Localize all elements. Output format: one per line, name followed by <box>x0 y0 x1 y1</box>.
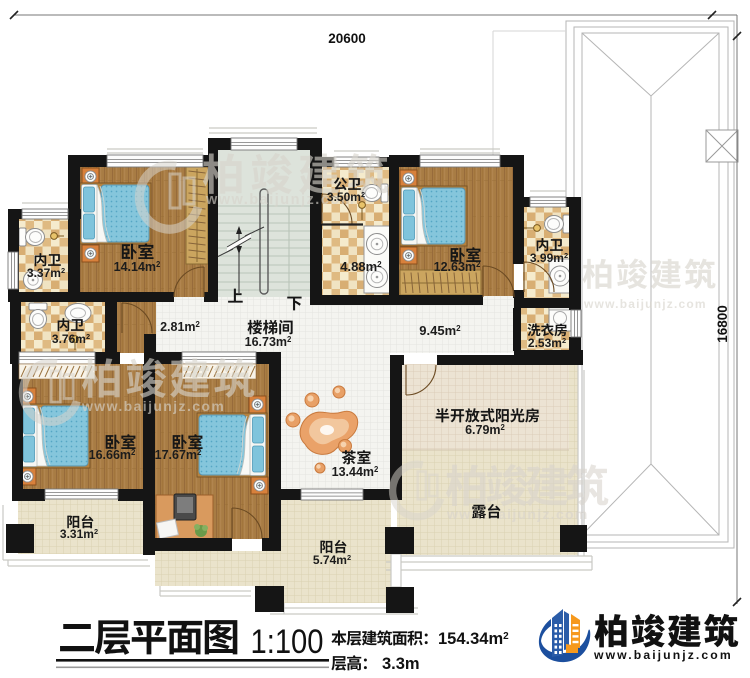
svg-text:12.63m2: 12.63m2 <box>434 260 481 274</box>
svg-text:3.3m: 3.3m <box>382 655 420 673</box>
svg-text:1:100: 1:100 <box>251 623 324 661</box>
svg-text:16800: 16800 <box>715 305 730 343</box>
svg-text:9.45m2: 9.45m2 <box>419 323 461 338</box>
svg-text:16.73m2: 16.73m2 <box>245 335 292 349</box>
svg-text:2.81m2: 2.81m2 <box>160 320 200 334</box>
svg-text:5.74m2: 5.74m2 <box>313 553 351 567</box>
svg-text:www.baijunjz.com: www.baijunjz.com <box>446 506 589 522</box>
svg-text:17.67m2: 17.67m2 <box>155 448 202 462</box>
svg-text:14.14m2: 14.14m2 <box>114 260 161 274</box>
svg-text:www.baijunjz.com: www.baijunjz.com <box>593 648 733 662</box>
svg-text:3.37m2: 3.37m2 <box>27 266 65 280</box>
svg-text:3.99m2: 3.99m2 <box>530 251 568 265</box>
svg-text:3.76m2: 3.76m2 <box>52 332 90 346</box>
svg-text:4.88m2: 4.88m2 <box>340 259 382 274</box>
svg-text:www.baijunjz.com: www.baijunjz.com <box>583 297 707 311</box>
svg-text:www.baijunjz.com: www.baijunjz.com <box>81 398 225 414</box>
svg-text:13.44m2: 13.44m2 <box>332 465 379 479</box>
svg-text:2.53m2: 2.53m2 <box>528 336 566 350</box>
svg-text:6.79m2: 6.79m2 <box>465 423 505 437</box>
svg-text:3.50m2: 3.50m2 <box>327 190 365 204</box>
svg-text:16.66m2: 16.66m2 <box>89 448 136 462</box>
svg-text:154.34m2: 154.34m2 <box>438 630 509 648</box>
svg-text:20600: 20600 <box>328 31 366 46</box>
svg-text:3.31m2: 3.31m2 <box>60 527 98 541</box>
